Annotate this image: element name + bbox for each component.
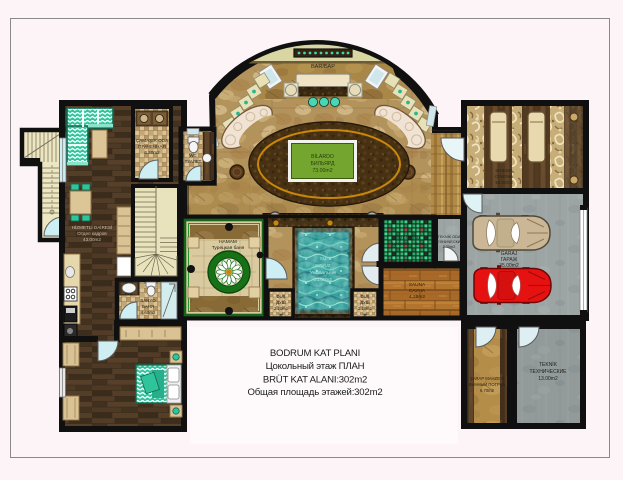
svg-text:✳: ✳ — [362, 312, 367, 319]
svg-text:ДУШ: ДУШ — [276, 300, 286, 305]
svg-text:13.00m2: 13.00m2 — [538, 376, 558, 382]
svg-text:4.60m2: 4.60m2 — [141, 310, 156, 315]
svg-text:SAUNA: SAUNA — [409, 282, 426, 288]
svg-text:ВИННЫЙ ПОГРЕБ: ВИННЫЙ ПОГРЕБ — [469, 382, 506, 387]
svg-text:WC: WC — [189, 153, 196, 158]
svg-text:2.20m2: 2.20m2 — [274, 306, 289, 311]
svg-text:2.20m2: 2.20m2 — [358, 306, 373, 311]
svg-text:САУНА: САУНА — [409, 288, 426, 294]
svg-text:TEKNİK ODA: TEKNİK ODA — [438, 234, 461, 239]
svg-text:6.70m2: 6.70m2 — [480, 388, 495, 393]
svg-text:SİNEMA: SİNEMA — [495, 167, 514, 173]
svg-text:6.30m2: 6.30m2 — [144, 150, 160, 155]
svg-text:БАНЯ: БАНЯ — [142, 304, 154, 309]
svg-text:20.00m2: 20.00m2 — [314, 277, 332, 282]
svg-text:✳: ✳ — [278, 312, 283, 319]
svg-text:Цокольный этаж ПЛАН: Цокольный этаж ПЛАН — [266, 361, 365, 372]
svg-text:73.00m2: 73.00m2 — [312, 168, 332, 174]
svg-text:SU: SU — [320, 256, 326, 261]
svg-text:ТЕХНИЧЕСКИЕ: ТЕХНИЧЕСКИЕ — [529, 369, 567, 375]
svg-text:ТЕХНИЧЕСКИЕ: ТЕХНИЧЕСКИЕ — [435, 240, 464, 244]
svg-text:TEKNİK: TEKNİK — [539, 361, 558, 368]
svg-text:HAVUZ: HAVUZ — [315, 263, 330, 268]
svg-text:Умывальник: Умывальник — [310, 270, 337, 275]
svg-text:Отдел кадров: Отдел кадров — [77, 231, 107, 236]
svg-text:SU DEPOSU: SU DEPOSU — [396, 235, 420, 240]
svg-text:BİLARDO: BİLARDO — [311, 153, 334, 160]
svg-text:HİZMETLİ DAİRESİ: HİZMETLİ DAİRESİ — [72, 224, 113, 230]
svg-text:Турецкая баня: Турецкая баня — [212, 245, 245, 251]
svg-text:DUŞ: DUŞ — [361, 294, 370, 299]
svg-text:18.00m2: 18.00m2 — [495, 180, 513, 185]
svg-text:ТУАЛЕТ: ТУАЛЕТ — [185, 159, 202, 164]
svg-text:43.00m2: 43.00m2 — [83, 237, 101, 242]
svg-text:ÇAMAŞIR ODA: ÇAMAŞIR ODA — [136, 138, 169, 143]
svg-text:Общая площадь этажей:302m2: Общая площадь этажей:302m2 — [248, 387, 383, 398]
svg-text:ПРАЧЕЧНАЯ: ПРАЧЕЧНАЯ — [138, 144, 166, 149]
svg-text:BAR/БАР: BAR/БАР — [311, 64, 335, 70]
svg-text:ВОДОЁМ 4.30m2: ВОДОЁМ 4.30m2 — [392, 241, 425, 246]
svg-text:4.25m2: 4.25m2 — [409, 294, 425, 300]
svg-text:CINEMA: CINEMA — [495, 174, 514, 179]
svg-text:ДУШ: ДУШ — [360, 300, 370, 305]
svg-text:BANYO: BANYO — [140, 298, 156, 303]
svg-text:ŞARAP MAHZENİ: ŞARAP MAHZENİ — [470, 376, 504, 381]
svg-text:BODRUM KAT PLANI: BODRUM KAT PLANI — [270, 348, 360, 359]
svg-text:BRÜT KAT ALANI:302m2: BRÜT KAT ALANI:302m2 — [263, 375, 367, 386]
svg-text:HAMAM: HAMAM — [219, 239, 237, 245]
svg-text:DUŞ: DUŞ — [277, 294, 286, 299]
svg-text:БИЛЬЯРД: БИЛЬЯРД — [310, 161, 335, 167]
